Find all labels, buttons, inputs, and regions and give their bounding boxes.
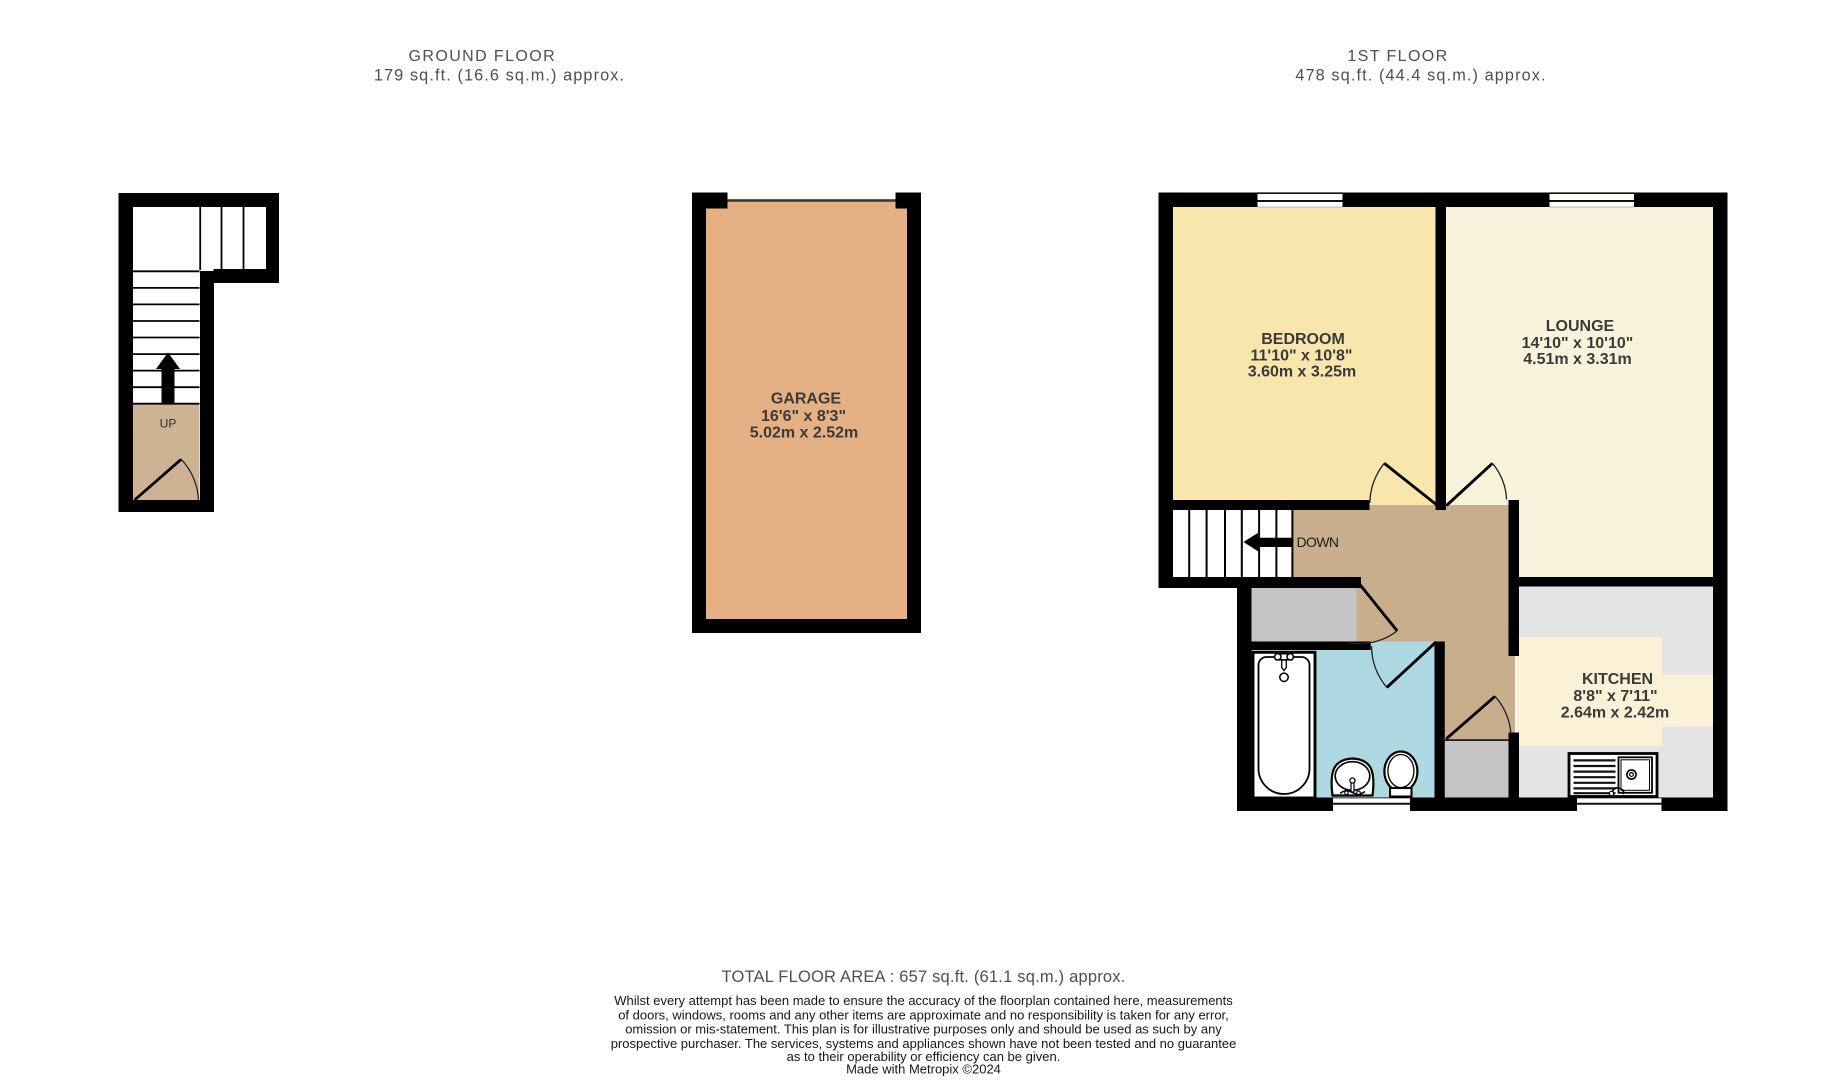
svg-text:1ST FLOOR: 1ST FLOOR <box>1347 48 1448 65</box>
svg-text:GROUND FLOOR: GROUND FLOOR <box>409 48 556 65</box>
svg-text:Made with Metropix ©2024: Made with Metropix ©2024 <box>846 1062 1001 1077</box>
svg-text:4.51m x 3.31m: 4.51m x 3.31m <box>1523 351 1632 368</box>
svg-text:BEDROOM: BEDROOM <box>1261 331 1345 348</box>
svg-text:14'10" x 10'10": 14'10" x 10'10" <box>1522 335 1634 352</box>
svg-text:UP: UP <box>160 417 177 431</box>
svg-text:Whilst every attempt has been: Whilst every attempt has been made to en… <box>614 993 1233 1008</box>
svg-text:16'6" x 8'3": 16'6" x 8'3" <box>761 408 846 425</box>
svg-text:11'10" x 10'8": 11'10" x 10'8" <box>1251 347 1353 364</box>
svg-text:of doors, windows, rooms and a: of doors, windows, rooms and any other i… <box>618 1007 1229 1022</box>
svg-text:5.02m x 2.52m: 5.02m x 2.52m <box>750 424 859 441</box>
svg-text:GARAGE: GARAGE <box>771 391 842 408</box>
svg-text:179 sq.ft. (16.6 sq.m.) approx: 179 sq.ft. (16.6 sq.m.) approx. <box>374 67 625 85</box>
svg-text:TOTAL FLOOR AREA : 657 sq.ft.: TOTAL FLOOR AREA : 657 sq.ft. (61.1 sq.m… <box>721 968 1125 986</box>
svg-text:2.64m x 2.42m: 2.64m x 2.42m <box>1561 704 1670 721</box>
svg-text:KITCHEN: KITCHEN <box>1582 671 1653 688</box>
svg-text:omission or mis-statement. Thi: omission or mis-statement. This plan is … <box>625 1022 1222 1037</box>
svg-text:LOUNGE: LOUNGE <box>1546 318 1615 335</box>
svg-text:DOWN: DOWN <box>1297 534 1339 550</box>
svg-text:478 sq.ft. (44.4 sq.m.) approx: 478 sq.ft. (44.4 sq.m.) approx. <box>1295 67 1546 85</box>
svg-text:3.60m x 3.25m: 3.60m x 3.25m <box>1248 364 1357 381</box>
svg-text:8'8" x 7'11": 8'8" x 7'11" <box>1573 688 1657 705</box>
